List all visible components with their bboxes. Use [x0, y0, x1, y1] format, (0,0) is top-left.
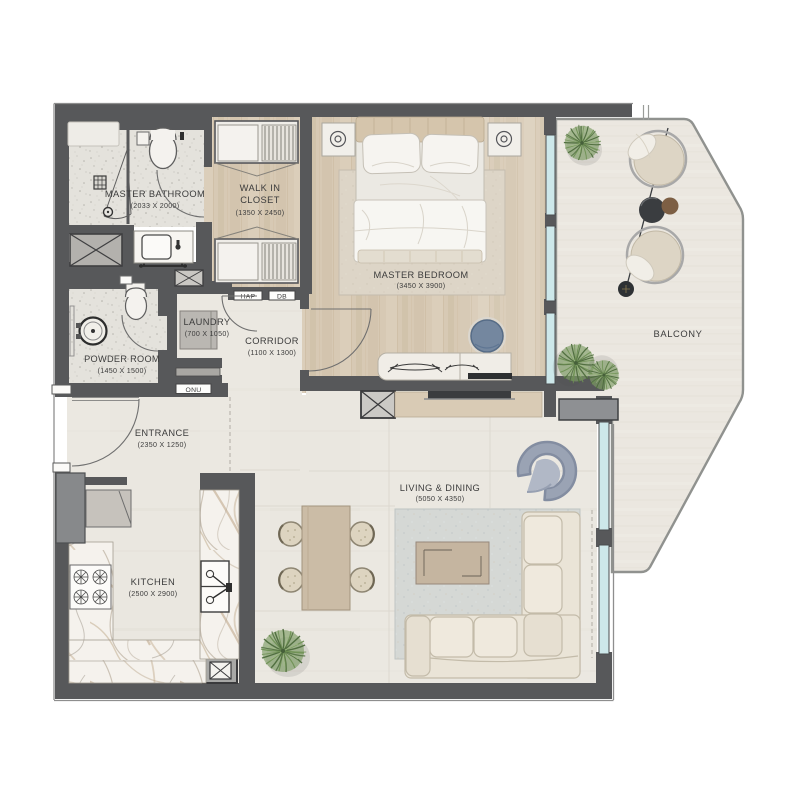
svg-text:CLOSET: CLOSET: [240, 195, 280, 205]
svg-text:(5050 X 4350): (5050 X 4350): [416, 495, 465, 503]
svg-text:HAP: HAP: [241, 294, 256, 301]
svg-text:CORRIDOR: CORRIDOR: [245, 336, 299, 346]
svg-text:MASTER BEDROOM: MASTER BEDROOM: [374, 270, 469, 280]
svg-text:ONU: ONU: [185, 387, 201, 394]
svg-text:ENTRANCE: ENTRANCE: [135, 428, 189, 438]
svg-text:(2033 X 2000): (2033 X 2000): [131, 202, 180, 210]
svg-text:DB: DB: [277, 294, 287, 301]
svg-text:WALK IN: WALK IN: [240, 183, 281, 193]
svg-text:(1450 X 1500): (1450 X 1500): [98, 367, 147, 375]
svg-text:(1350 X 2450): (1350 X 2450): [236, 209, 285, 217]
svg-text:(2350 X 1250): (2350 X 1250): [138, 441, 187, 449]
svg-text:LIVING & DINING: LIVING & DINING: [400, 483, 480, 493]
svg-text:KITCHEN: KITCHEN: [131, 576, 176, 587]
svg-text:LAUNDRY: LAUNDRY: [183, 317, 230, 327]
svg-text:MASTER BATHROOM: MASTER BATHROOM: [105, 189, 205, 199]
svg-text:(1100 X 1300): (1100 X 1300): [248, 349, 296, 357]
svg-text:BALCONY: BALCONY: [653, 328, 702, 339]
svg-text:(2500 X 2900): (2500 X 2900): [129, 590, 178, 598]
svg-text:(700 X 1050): (700 X 1050): [185, 330, 230, 338]
svg-text:(3450 X 3900): (3450 X 3900): [397, 282, 446, 290]
svg-text:POWDER ROOM: POWDER ROOM: [84, 354, 160, 364]
